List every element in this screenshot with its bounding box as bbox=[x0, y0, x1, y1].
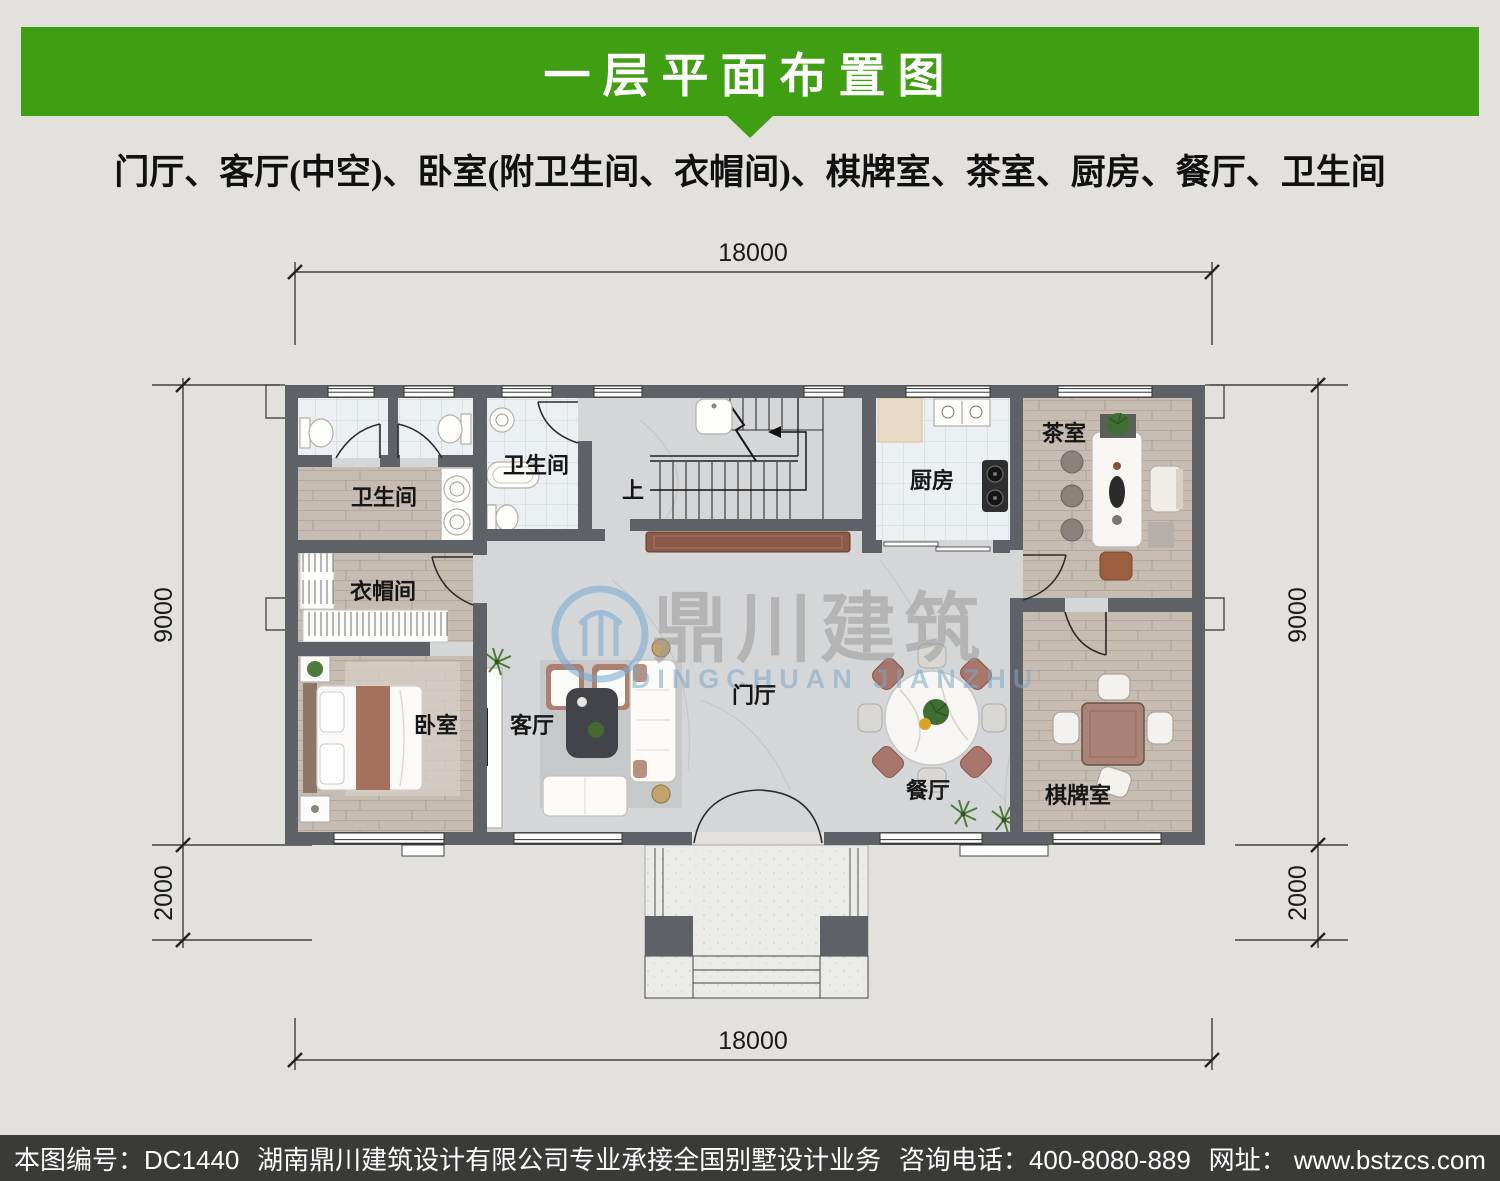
watermark-en: DINGCHUAN JIANZHU bbox=[631, 664, 1040, 694]
bed-runner bbox=[356, 686, 390, 790]
floor-plan-drawing: 18000 18000 9000 2000 bbox=[0, 0, 1500, 1181]
dim-left-porch: 2000 bbox=[150, 865, 178, 921]
label-living: 客厅 bbox=[510, 713, 554, 738]
washroom-sinks bbox=[441, 468, 473, 544]
watermark-cn: 鼎川建筑 bbox=[652, 587, 988, 672]
tv-cabinet bbox=[486, 668, 502, 828]
label-main-bath: 卫生间 bbox=[503, 453, 569, 478]
dim-left-depth: 9000 bbox=[150, 587, 178, 643]
shoe-bench bbox=[646, 532, 850, 552]
dim-top-width: 18000 bbox=[718, 239, 788, 267]
phone-number: 咨询电话：400-8080-889 bbox=[899, 1140, 1191, 1177]
entry-porch bbox=[645, 845, 868, 998]
page: 一层平面布置图 门厅、客厅(中空)、卧室(附卫生间、衣帽间)、棋牌室、茶室、厨房… bbox=[0, 0, 1500, 1181]
footer-bar: 本图编号：DC1440 湖南鼎川建筑设计有限公司专业承接全国别墅设计业务 咨询电… bbox=[0, 1135, 1500, 1181]
label-dining: 餐厅 bbox=[906, 778, 950, 803]
label-bedroom: 卧室 bbox=[414, 713, 458, 738]
label-chess: 棋牌室 bbox=[1045, 783, 1111, 808]
website-url: 网址： www.bstzcs.com bbox=[1209, 1140, 1486, 1177]
label-cloakroom: 衣帽间 bbox=[350, 579, 416, 604]
dim-right-depth: 9000 bbox=[1284, 587, 1312, 643]
bed-headboard bbox=[303, 683, 317, 793]
porch-column bbox=[645, 916, 693, 956]
label-foyer: 门厅 bbox=[732, 683, 776, 708]
label-tea: 茶室 bbox=[1042, 421, 1086, 446]
dim-right-porch: 2000 bbox=[1284, 865, 1312, 921]
stairs-up-label: 上 bbox=[622, 478, 644, 503]
dim-bottom-width: 18000 bbox=[718, 1027, 788, 1055]
porch-column bbox=[820, 916, 868, 956]
game-table bbox=[1082, 703, 1144, 765]
coffee-table bbox=[566, 688, 618, 758]
drawing-number: 本图编号：DC1440 bbox=[14, 1140, 239, 1177]
label-kitchen: 厨房 bbox=[910, 468, 954, 493]
label-washroom: 卫生间 bbox=[351, 485, 417, 510]
company-slogan: 湖南鼎川建筑设计有限公司专业承接全国别墅设计业务 bbox=[257, 1140, 881, 1177]
